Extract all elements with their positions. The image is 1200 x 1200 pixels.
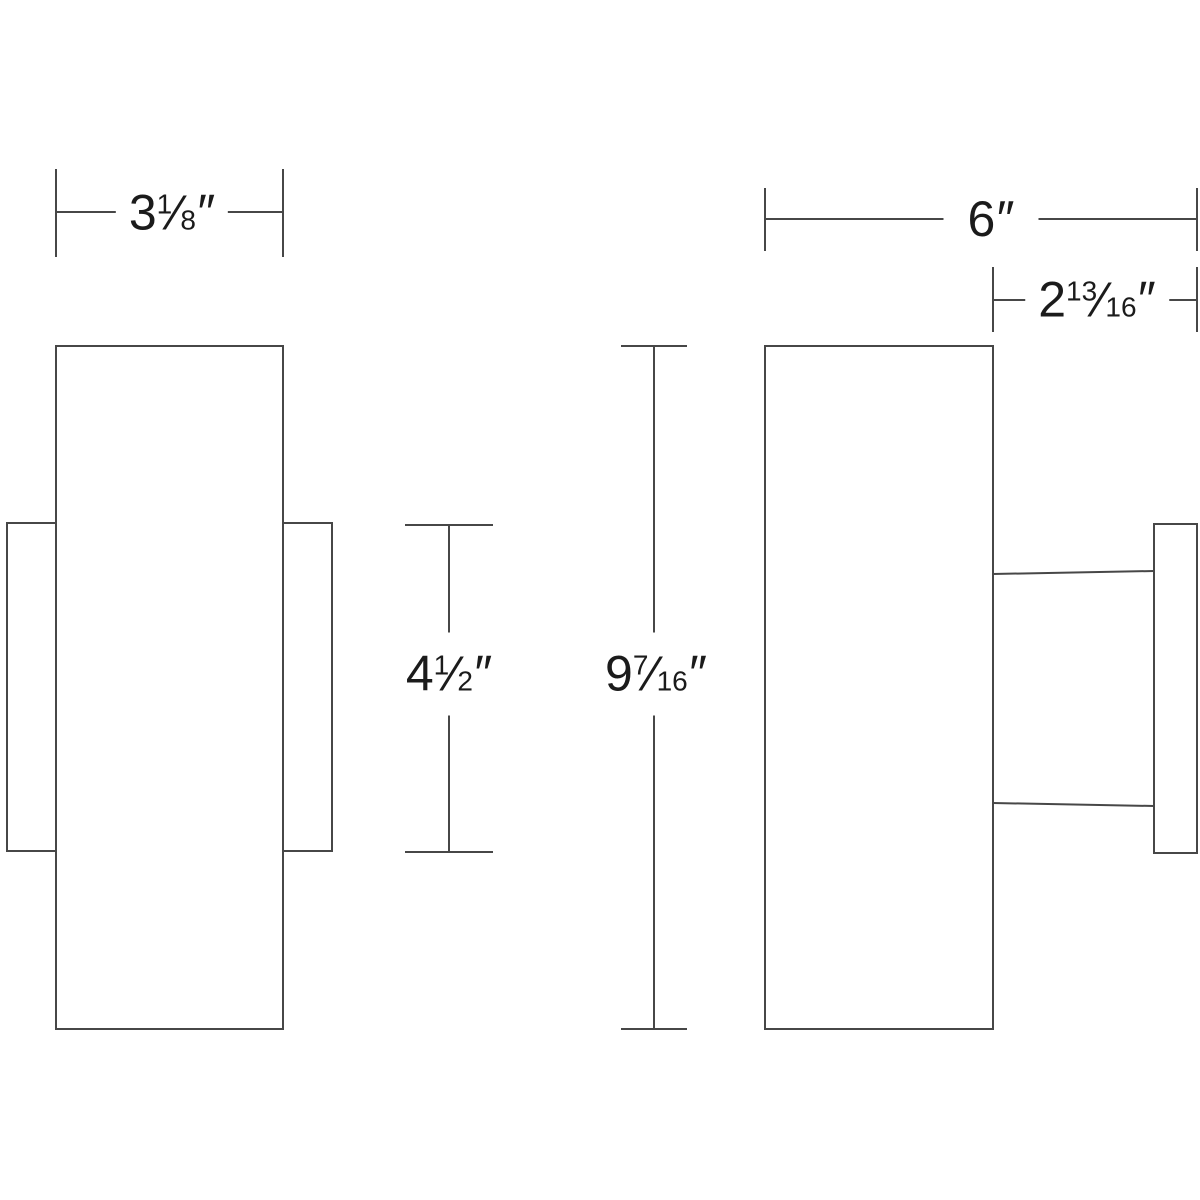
- fraction-slash: ⁄: [648, 648, 656, 702]
- overall-depth-label: 6″: [943, 186, 1038, 252]
- front-body-outline: [56, 346, 283, 1029]
- dimension-whole: 9: [605, 646, 633, 702]
- inch-mark: ″: [997, 191, 1015, 247]
- dimension-diagram: 31⁄8″ 6″ 213⁄16″ 41⁄2″ 97⁄16″: [0, 0, 1200, 1200]
- fraction-denominator: 16: [657, 666, 688, 697]
- inch-mark: ″: [197, 185, 215, 241]
- inch-mark: ″: [689, 646, 707, 702]
- dimension-whole: 4: [406, 646, 434, 702]
- dimension-whole: 3: [129, 185, 157, 241]
- overall-height-label: 97⁄16″: [595, 633, 717, 716]
- fraction-slash: ⁄: [172, 187, 180, 241]
- fraction-numerator: 13: [1066, 276, 1097, 307]
- inch-mark: ″: [1138, 272, 1156, 328]
- fraction-numerator: 7: [633, 650, 649, 681]
- side-body-outline: [765, 346, 993, 1029]
- side-arm-top-line: [993, 571, 1154, 574]
- fraction-slash: ⁄: [1097, 274, 1105, 328]
- front-width-label: 31⁄8″: [116, 180, 228, 247]
- side-arm-bottom-line: [993, 803, 1154, 806]
- fraction-denominator: 16: [1105, 292, 1136, 323]
- fraction-denominator: 8: [180, 205, 196, 236]
- fraction-slash: ⁄: [449, 648, 457, 702]
- side-backplate-outline: [1154, 524, 1197, 853]
- side-view: [765, 346, 1197, 1029]
- front-view: [7, 346, 332, 1029]
- fraction-numerator: 1: [157, 189, 173, 220]
- fraction-numerator: 1: [434, 650, 450, 681]
- backplate-height-label: 41⁄2″: [396, 633, 502, 716]
- dimension-whole: 6: [967, 191, 995, 247]
- inch-mark: ″: [474, 646, 492, 702]
- fraction-denominator: 2: [457, 666, 473, 697]
- dimension-whole: 2: [1038, 272, 1066, 328]
- extension-label: 213⁄16″: [1025, 267, 1169, 334]
